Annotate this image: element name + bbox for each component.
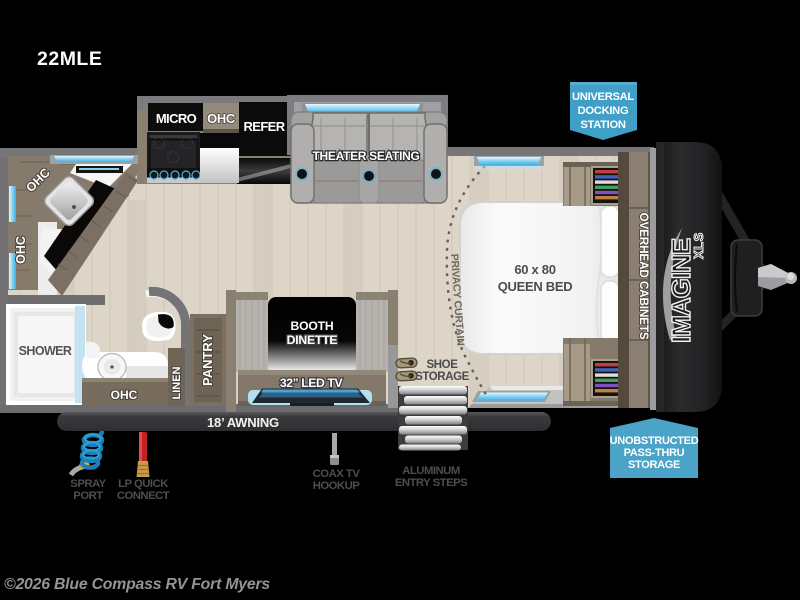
svg-text:THEATER SEATING: THEATER SEATING xyxy=(312,149,419,163)
svg-text:PORT: PORT xyxy=(73,490,103,502)
svg-text:OVERHEAD CABINETS: OVERHEAD CABINETS xyxy=(637,212,651,339)
svg-text:STORAGE: STORAGE xyxy=(628,459,680,471)
svg-text:©2026 Blue Compass RV Fort Mye: ©2026 Blue Compass RV Fort Myers xyxy=(4,576,270,593)
svg-text:DOCKING: DOCKING xyxy=(578,105,629,117)
svg-text:CONNECT: CONNECT xyxy=(117,490,170,502)
svg-text:OHC: OHC xyxy=(207,111,236,126)
svg-text:XLS: XLS xyxy=(691,232,706,259)
svg-text:ENTRY STEPS: ENTRY STEPS xyxy=(395,477,468,489)
svg-text:UNOBSTRUCTED: UNOBSTRUCTED xyxy=(610,435,699,447)
svg-text:LINEN: LINEN xyxy=(171,366,183,399)
svg-text:DINETTE: DINETTE xyxy=(287,333,338,347)
svg-text:SHOWER: SHOWER xyxy=(19,344,72,358)
svg-text:18’ AWNING: 18’ AWNING xyxy=(207,415,279,430)
svg-text:ALUMINUM: ALUMINUM xyxy=(402,465,460,477)
svg-text:UNIVERSAL: UNIVERSAL xyxy=(572,91,634,103)
svg-text:SHOE: SHOE xyxy=(427,359,459,371)
svg-text:60 x 80: 60 x 80 xyxy=(514,262,555,277)
svg-text:PASS-THRU: PASS-THRU xyxy=(624,447,685,459)
svg-text:32” LED TV: 32” LED TV xyxy=(280,376,344,390)
svg-text:STATION: STATION xyxy=(580,119,626,131)
svg-text:BOOTH: BOOTH xyxy=(290,319,333,333)
svg-text:HOOKUP: HOOKUP xyxy=(313,480,361,492)
svg-text:OHC: OHC xyxy=(111,388,138,402)
svg-text:REFER: REFER xyxy=(243,119,285,134)
svg-text:LP QUICK: LP QUICK xyxy=(118,478,169,490)
svg-text:MICRO: MICRO xyxy=(156,111,197,126)
svg-text:OHC: OHC xyxy=(14,236,28,264)
svg-text:SPRAY: SPRAY xyxy=(70,478,106,490)
svg-text:PANTRY: PANTRY xyxy=(200,334,215,386)
svg-text:22MLE: 22MLE xyxy=(37,48,102,70)
svg-text:STORAGE: STORAGE xyxy=(415,371,470,383)
svg-text:COAX TV: COAX TV xyxy=(313,468,361,480)
svg-text:QUEEN BED: QUEEN BED xyxy=(498,279,573,294)
